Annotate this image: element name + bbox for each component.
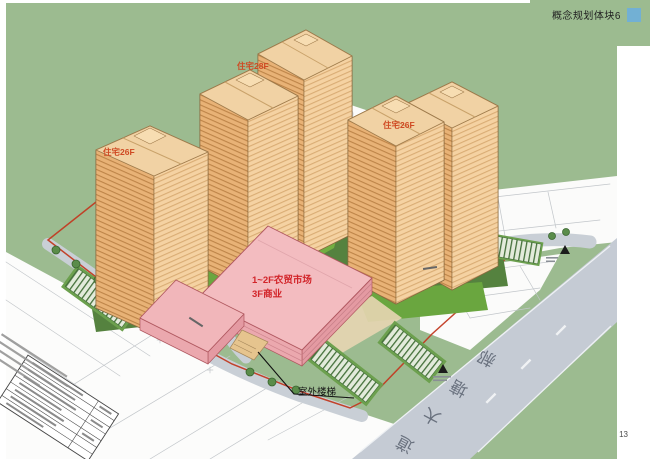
tower-right-label: 住宅26F [383,120,415,130]
site-plan-rendering: 郝 塘 大 道 [0,0,650,459]
slide-page: 郝 塘 大 道 [0,0,650,459]
outdoor-stairs-label: 室外楼梯 [298,386,337,398]
market-label-line2: 3F商业 [252,288,283,300]
page-title: 概念规划体块6 [552,9,621,22]
page-number: 13 [619,430,628,439]
banner-color-chip-icon [627,8,641,22]
tower-left-label: 住宅26F [103,147,135,157]
tower-center-label: 住宅28F [237,61,269,71]
market-label-line1: 1~2F农贸市场 [252,274,312,286]
slide-header: 概念规划体块6 [552,8,641,22]
